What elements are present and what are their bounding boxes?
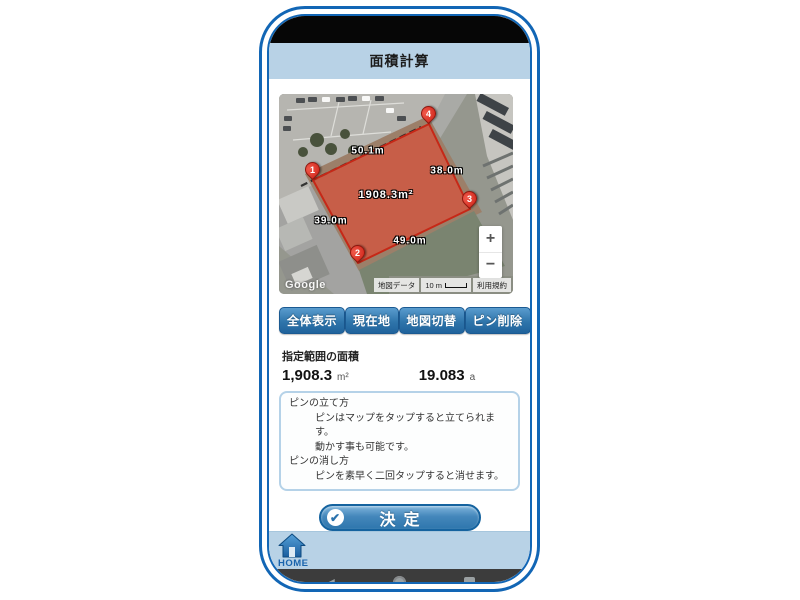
zoom-out-button[interactable]: − [479, 253, 502, 279]
home-button[interactable]: HOME [278, 533, 312, 569]
edge-length-label-2-3: 49.0m [393, 236, 426, 247]
area-sqm-value: 1,908.3 [282, 367, 332, 384]
help-line: ピンはマップをタップすると立てられます。 [289, 412, 510, 441]
app-header: 面積計算 [269, 43, 530, 79]
map-attribution: 地図データ 10 m 利用規約 [374, 278, 511, 292]
terms-link[interactable]: 利用規約 [473, 278, 511, 292]
home-bar: HOME [269, 531, 530, 569]
current-location-button[interactable]: 現在地 [345, 307, 399, 334]
help-line: 動かす事も可能です。 [289, 441, 510, 456]
help-box: ピンの立て方 ピンはマップをタップすると立てられます。 動かす事も可能です。 ピ… [279, 391, 520, 491]
map-switch-button[interactable]: 地図切替 [399, 307, 465, 334]
confirm-button[interactable]: ✔ 決定 [319, 504, 481, 531]
edge-length-label-1-4: 50.1m [351, 146, 384, 157]
area-are-value: 19.083 [419, 367, 465, 384]
map-zoom-control: + − [479, 226, 502, 278]
map-view[interactable]: 50.1m 38.0m 39.0m 49.0m 1908.3m² 1 2 3 4… [279, 94, 513, 294]
map-data-label: 地図データ [374, 278, 420, 292]
edge-length-label-4-3: 38.0m [430, 166, 463, 177]
home-label: HOME [278, 558, 309, 569]
page-title: 面積計算 [370, 51, 430, 71]
scale-line [445, 283, 467, 288]
recents-button[interactable] [464, 577, 475, 584]
google-logo: Google [285, 279, 326, 291]
edge-length-label-1-2: 39.0m [314, 216, 347, 227]
status-bar [269, 16, 530, 43]
show-all-button[interactable]: 全体表示 [279, 307, 345, 334]
phone-screen: 面積計算 [267, 14, 532, 584]
house-icon [278, 533, 306, 558]
area-label: 1908.3m² [358, 189, 413, 201]
android-nav-bar: ◀ [269, 569, 530, 584]
area-sqm-unit: m² [337, 372, 349, 383]
scale-bar: 10 m [421, 278, 471, 292]
check-icon: ✔ [327, 509, 344, 526]
toolbar: 全体表示 現在地 地図切替 ピン削除 [279, 307, 520, 334]
zoom-in-button[interactable]: + [479, 226, 502, 253]
result-caption: 指定範囲の面積 [282, 348, 520, 364]
help-line: ピンを素早く二回タップすると消せます。 [289, 470, 510, 485]
back-button[interactable]: ◀ [324, 576, 335, 585]
area-are-unit: a [470, 372, 476, 383]
confirm-button-label: 決定 [379, 506, 427, 530]
result-values: 1,908.3 m² 19.083 a [282, 367, 520, 384]
android-home-button[interactable] [393, 576, 406, 584]
main-content: 50.1m 38.0m 39.0m 49.0m 1908.3m² 1 2 3 4… [269, 79, 530, 531]
help-line: ピンの立て方 [289, 397, 510, 412]
phone-frame: 面積計算 [259, 6, 540, 592]
help-line: ピンの消し方 [289, 455, 510, 470]
delete-pin-button[interactable]: ピン削除 [465, 307, 531, 334]
